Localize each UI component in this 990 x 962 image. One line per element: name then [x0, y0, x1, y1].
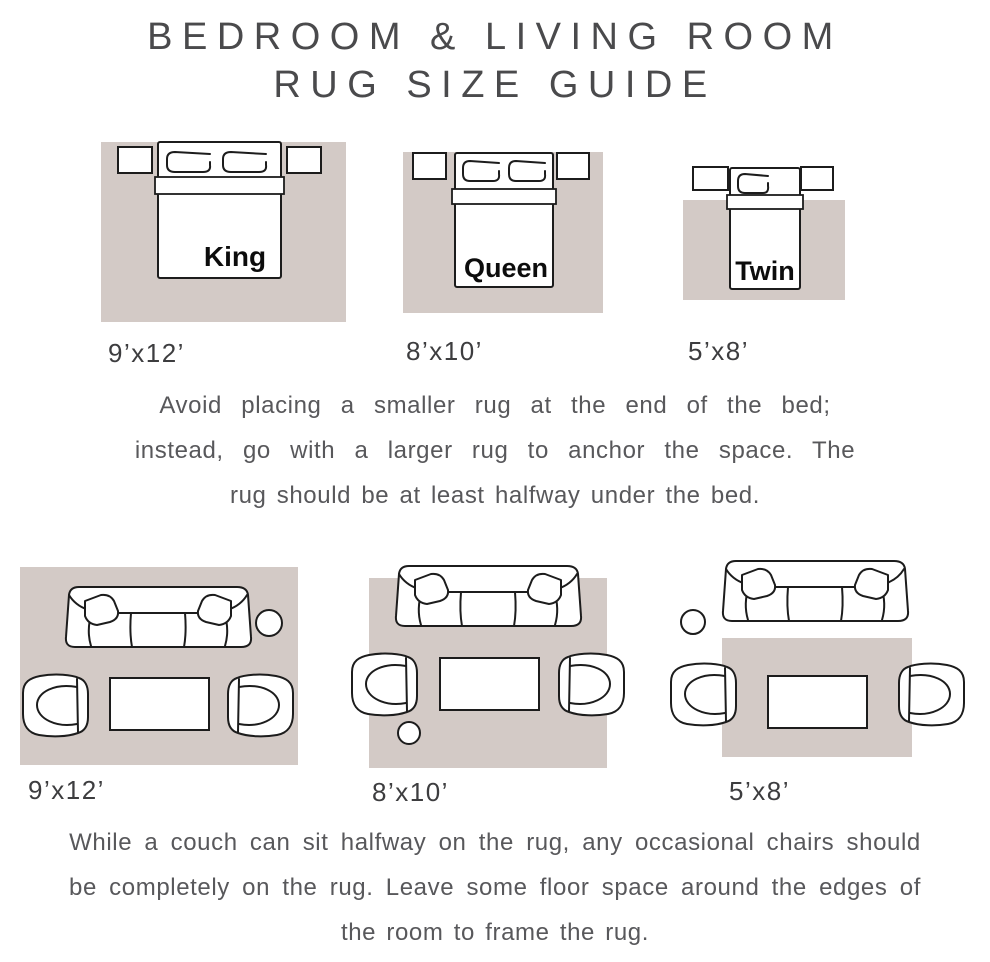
queen-nightstand-left-icon: [413, 153, 446, 179]
living-room-diagram-8x10: [345, 558, 635, 776]
side-table-icon: [681, 610, 705, 634]
side-table-icon: [256, 610, 282, 636]
king-nightstand-right-icon: [287, 147, 321, 173]
living-room-size-label-5x8: 5’x8’: [729, 776, 790, 807]
queen-bed-label: Queen: [464, 253, 548, 283]
rug-size-guide-infographic: BEDROOM & LIVING ROOM RUG SIZE GUIDE Kin…: [0, 0, 990, 962]
side-table-icon: [398, 722, 420, 744]
coffee-table-icon: [768, 676, 867, 728]
armchair-left-icon: [671, 664, 736, 726]
sofa-icon: [723, 561, 908, 621]
twin-nightstand-right-icon: [801, 167, 833, 190]
armchair-right-icon: [559, 654, 624, 716]
sofa-icon: [66, 587, 251, 647]
armchair-left-icon: [352, 654, 417, 716]
page-title-line-1: BEDROOM & LIVING ROOM: [0, 16, 990, 59]
king-sheet-fold-icon: [155, 177, 284, 194]
bedroom-diagram-king: King: [95, 135, 355, 335]
coffee-table-icon: [110, 678, 209, 730]
bedroom-note-line-2: instead, go with a larger rug to anchor …: [0, 428, 990, 473]
armchair-right-icon: [899, 664, 964, 726]
living-room-diagram-5x8: [660, 555, 980, 770]
living-room-note-line-1: While a couch can sit halfway on the rug…: [0, 820, 990, 865]
coffee-table-icon: [440, 658, 539, 710]
bedroom-diagram-twin: Twin: [675, 158, 860, 306]
sofa-icon: [396, 566, 581, 626]
bedroom-note-line-3: rug should be at least halfway under the…: [0, 473, 990, 518]
king-nightstand-left-icon: [118, 147, 152, 173]
queen-sheet-fold-icon: [452, 189, 556, 204]
living-room-size-label-8x10: 8’x10’: [372, 777, 449, 808]
armchair-right-icon: [228, 675, 293, 737]
armchair-left-icon: [23, 675, 88, 737]
twin-bed-label: Twin: [735, 256, 794, 286]
bedroom-note-line-1: Avoid placing a smaller rug at the end o…: [0, 383, 990, 428]
living-room-size-label-9x12: 9’x12’: [28, 775, 105, 806]
queen-nightstand-right-icon: [557, 153, 589, 179]
page-title-line-2: RUG SIZE GUIDE: [0, 64, 990, 107]
living-room-diagram-9x12: [15, 560, 310, 775]
bedroom-size-label-8x10: 8’x10’: [406, 336, 483, 367]
bedroom-size-label-9x12: 9’x12’: [108, 338, 185, 369]
bedroom-size-label-5x8: 5’x8’: [688, 336, 749, 367]
king-bed-label: King: [204, 241, 266, 272]
twin-sheet-fold-icon: [727, 195, 803, 209]
living-room-note-line-3: the room to frame the rug.: [0, 910, 990, 955]
bedroom-diagram-queen: Queen: [398, 145, 610, 320]
twin-nightstand-left-icon: [693, 167, 728, 190]
living-room-note-line-2: be completely on the rug. Leave some flo…: [0, 865, 990, 910]
